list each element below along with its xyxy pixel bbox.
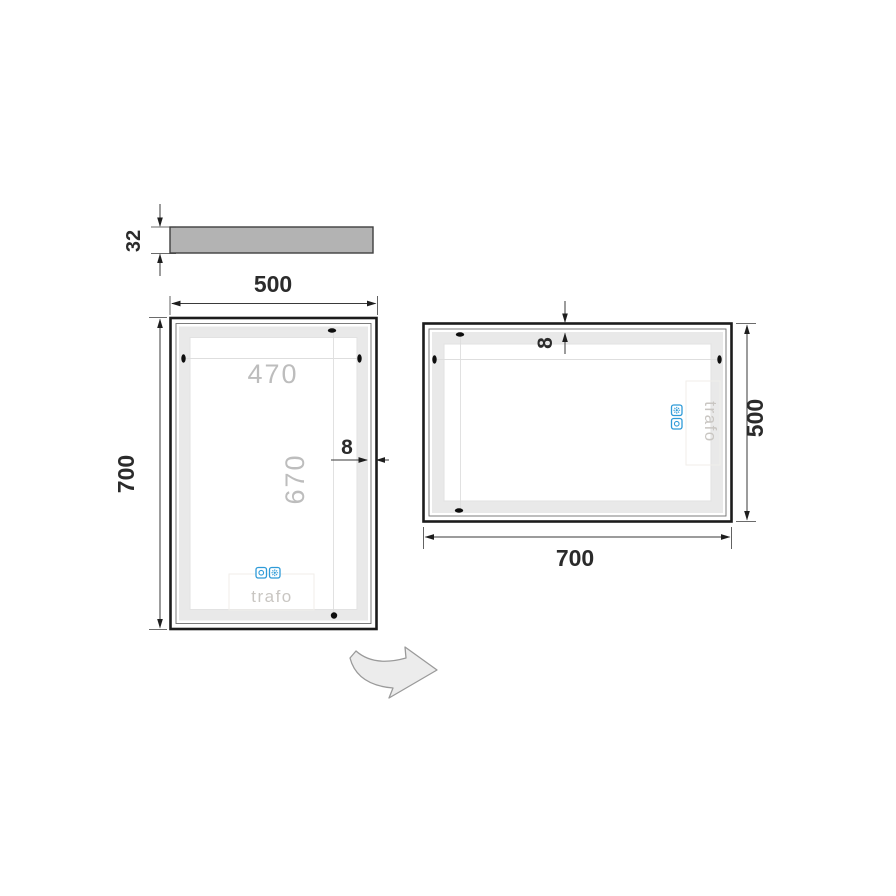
dim-width-label: 700 <box>556 545 594 571</box>
mount-dot <box>456 332 464 336</box>
profile-bar <box>170 227 373 253</box>
portrait-mirror-view: 470 670 8 500 700 trafo <box>113 271 389 630</box>
touch-switch-ring-icon <box>256 568 267 579</box>
mount-dot <box>357 354 361 362</box>
mirror-dimension-drawing: 32 470 670 8 500 700 <box>0 0 896 896</box>
edge-gap-label: 8 <box>534 337 557 349</box>
mount-dot <box>432 355 436 363</box>
touch-switch-ring-icon <box>672 419 683 430</box>
mount-dot <box>181 354 185 362</box>
technical-drawing-page: 32 470 670 8 500 700 <box>0 0 896 896</box>
rotate-arrow-icon <box>350 647 437 698</box>
touch-light-gear-icon <box>270 568 281 579</box>
lit-width-label: 470 <box>247 359 298 389</box>
touch-light-gear-icon <box>672 405 683 416</box>
dim-thickness-label: 32 <box>123 230 145 252</box>
side-profile-view: 32 <box>123 204 373 276</box>
dim-height-label: 700 <box>113 455 139 493</box>
trafo-label: trafo <box>251 587 293 606</box>
trafo-label: trafo <box>701 401 720 443</box>
lit-height-label: 670 <box>280 453 310 504</box>
mount-dot <box>328 328 336 332</box>
dim-height-label: 500 <box>742 399 768 437</box>
dim-width-label: 500 <box>254 271 292 297</box>
mount-dot <box>717 355 721 363</box>
mount-dot <box>455 508 463 512</box>
landscape-mirror-view: 8 500 700 trafo <box>424 301 769 571</box>
edge-gap-label: 8 <box>341 436 353 459</box>
mount-dot <box>331 612 337 618</box>
